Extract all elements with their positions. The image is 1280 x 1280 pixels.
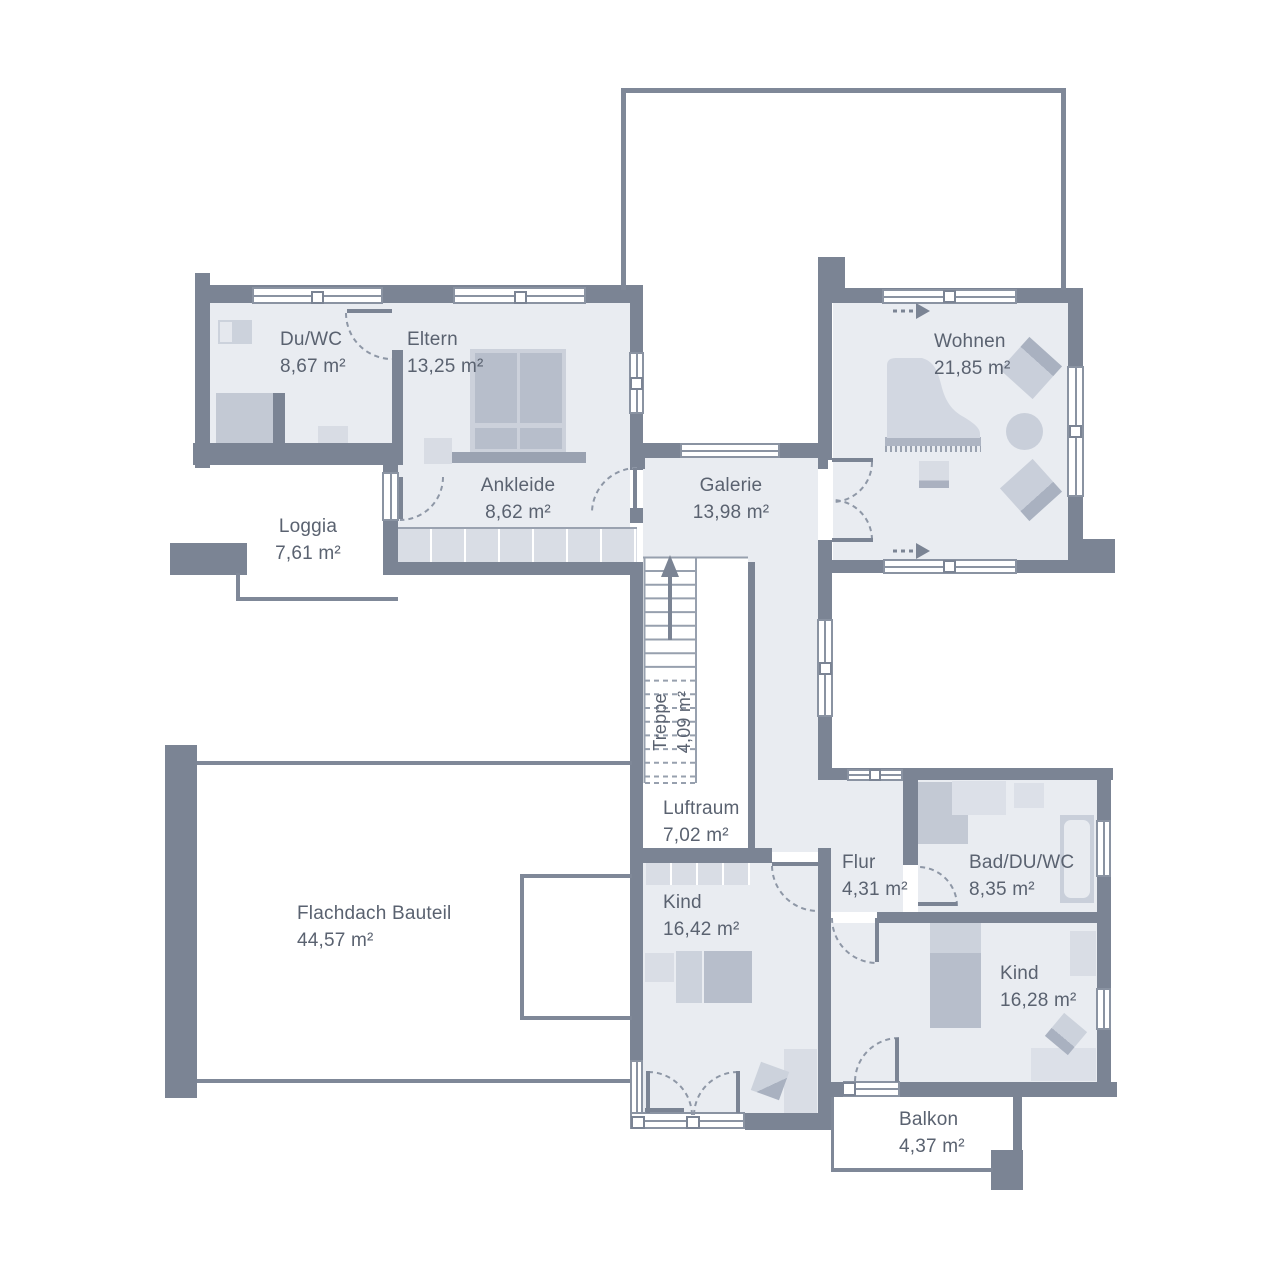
wall [273,393,285,452]
room-area: 7,02 m² [663,822,740,849]
terrace-outline-left [621,88,626,290]
room-area: 44,57 m² [297,927,451,954]
room-label-kind-links: Kind 16,42 m² [663,889,740,943]
shower-duwc [216,393,273,444]
room-area: 8,35 m² [969,876,1074,903]
room-area: 13,25 m² [407,353,484,380]
room-name: Kind [1000,960,1077,987]
room-label-loggia: Loggia 7,61 m² [275,513,341,567]
room-area: 8,62 m² [481,499,555,526]
wall [877,912,1111,923]
wall [383,562,643,575]
terrace-outline-top [621,88,1066,93]
wall [193,443,403,465]
room-fill-corridor [755,562,818,790]
flachdach-outline-bottom [197,1079,632,1083]
toilet-bad [952,781,1006,815]
desk-kind-links [784,1049,817,1114]
piano-stool [919,461,949,488]
room-area: 16,42 m² [663,916,740,943]
flachdach-wall-bar [165,745,197,1098]
loggia-outline-bottom [236,597,398,601]
room-label-eltern: Eltern 13,25 m² [407,326,484,380]
bed-kind-rechts-pillow [930,921,981,953]
window-handle [631,1116,645,1129]
wall [818,257,845,303]
bed-kind-rechts [930,953,981,1028]
room-name: Kind [663,889,740,916]
window-handle [686,1116,700,1129]
room-name: Bad/DU/WC [969,849,1074,876]
wall [818,540,832,562]
room-area: 16,28 m² [1000,987,1077,1014]
piano-keys-strip [885,437,981,446]
wall [991,1150,1023,1190]
flachdach-outline-top [197,761,632,765]
bed-kind-links-pillow [676,951,702,1003]
room-name: Flachdach Bauteil [297,900,451,927]
room-name: Du/WC [280,326,346,353]
room-name: Luftraum [663,795,740,822]
room-name: Galerie [693,472,770,499]
room-label-bad: Bad/DU/WC 8,35 m² [969,849,1074,903]
balkon-outline-left [831,1097,834,1170]
wardrobe-ankleide [398,527,637,563]
nightstand-kind-links [645,953,674,982]
wall [635,458,645,469]
window-handle [630,377,643,390]
room-name: Flur [842,849,908,876]
wall [1068,539,1115,573]
room-fill-flur [755,780,903,852]
wall [745,1113,831,1130]
room-label-balkon: Balkon 4,37 m² [899,1106,965,1160]
window-handle [842,1082,856,1096]
room-label-flachdach: Flachdach Bauteil 44,57 m² [297,900,451,954]
window-handle [1069,425,1082,438]
room-label-ankleide: Ankleide 8,62 m² [481,472,555,526]
flachdach-notch-left [520,874,524,1020]
room-label-galerie: Galerie 13,98 m² [693,472,770,526]
room-name: Wohnen [934,328,1011,355]
bed-eltern-pillow-right [520,428,562,449]
room-area: 21,85 m² [934,355,1011,382]
sink-bad [1014,783,1044,808]
room-area: 8,67 m² [280,353,346,380]
room-label-wohnen: Wohnen 21,85 m² [934,328,1011,382]
window [680,443,780,458]
window-handle [514,291,527,304]
wall [818,303,832,460]
sink-duwc-basin [220,322,232,342]
room-name: Treppe [648,691,672,753]
window [382,472,399,521]
window-handle [311,291,324,304]
flachdach-notch-bottom [520,1016,632,1020]
sideboard-eltern [452,452,586,463]
wardrobe-kind-links [646,861,750,885]
wall [630,562,643,1060]
window-handle [819,662,832,675]
wall [748,562,755,852]
room-label-flur: Flur 4,31 m² [842,849,908,903]
wall [1013,1097,1022,1150]
terrace-outline-right [1061,88,1066,290]
room-area: 13,98 m² [693,499,770,526]
room-label-luftraum: Luftraum 7,02 m² [663,795,740,849]
sideboard-kind-rechts [1031,1048,1096,1081]
wall [392,350,403,453]
bed-kind-links [704,951,752,1003]
window [1096,820,1111,877]
window [1096,988,1111,1030]
room-label-treppe: Treppe 4,09 m² [648,691,696,753]
nightstand-eltern [424,438,452,464]
balkon-outline-bottom [831,1168,993,1172]
wall [170,543,247,575]
room-name: Eltern [407,326,484,353]
room-area: 4,31 m² [842,876,908,903]
room-area: 4,09 m² [672,691,696,753]
room-name: Ankleide [481,472,555,499]
wall [818,848,831,863]
window-handle [943,560,956,573]
side-table-round [1006,413,1043,450]
flachdach-notch-top [520,874,632,878]
room-area: 7,61 m² [275,540,341,567]
room-label-kind-rechts: Kind 16,28 m² [1000,960,1077,1014]
room-name: Loggia [275,513,341,540]
wall [630,848,772,863]
wall [630,508,643,523]
room-area: 4,37 m² [899,1133,965,1160]
piano-keys-fringe [885,446,981,452]
bed-eltern-pillow-left [475,428,517,449]
floor-plan: Du/WC 8,67 m² Eltern 13,25 m² Ankleide 8… [0,0,1280,1280]
room-name: Balkon [899,1106,965,1133]
bed-eltern-mattress-right [520,353,562,423]
window-handle [869,769,881,781]
window-handle [943,290,956,303]
room-label-duwc: Du/WC 8,67 m² [280,326,346,380]
